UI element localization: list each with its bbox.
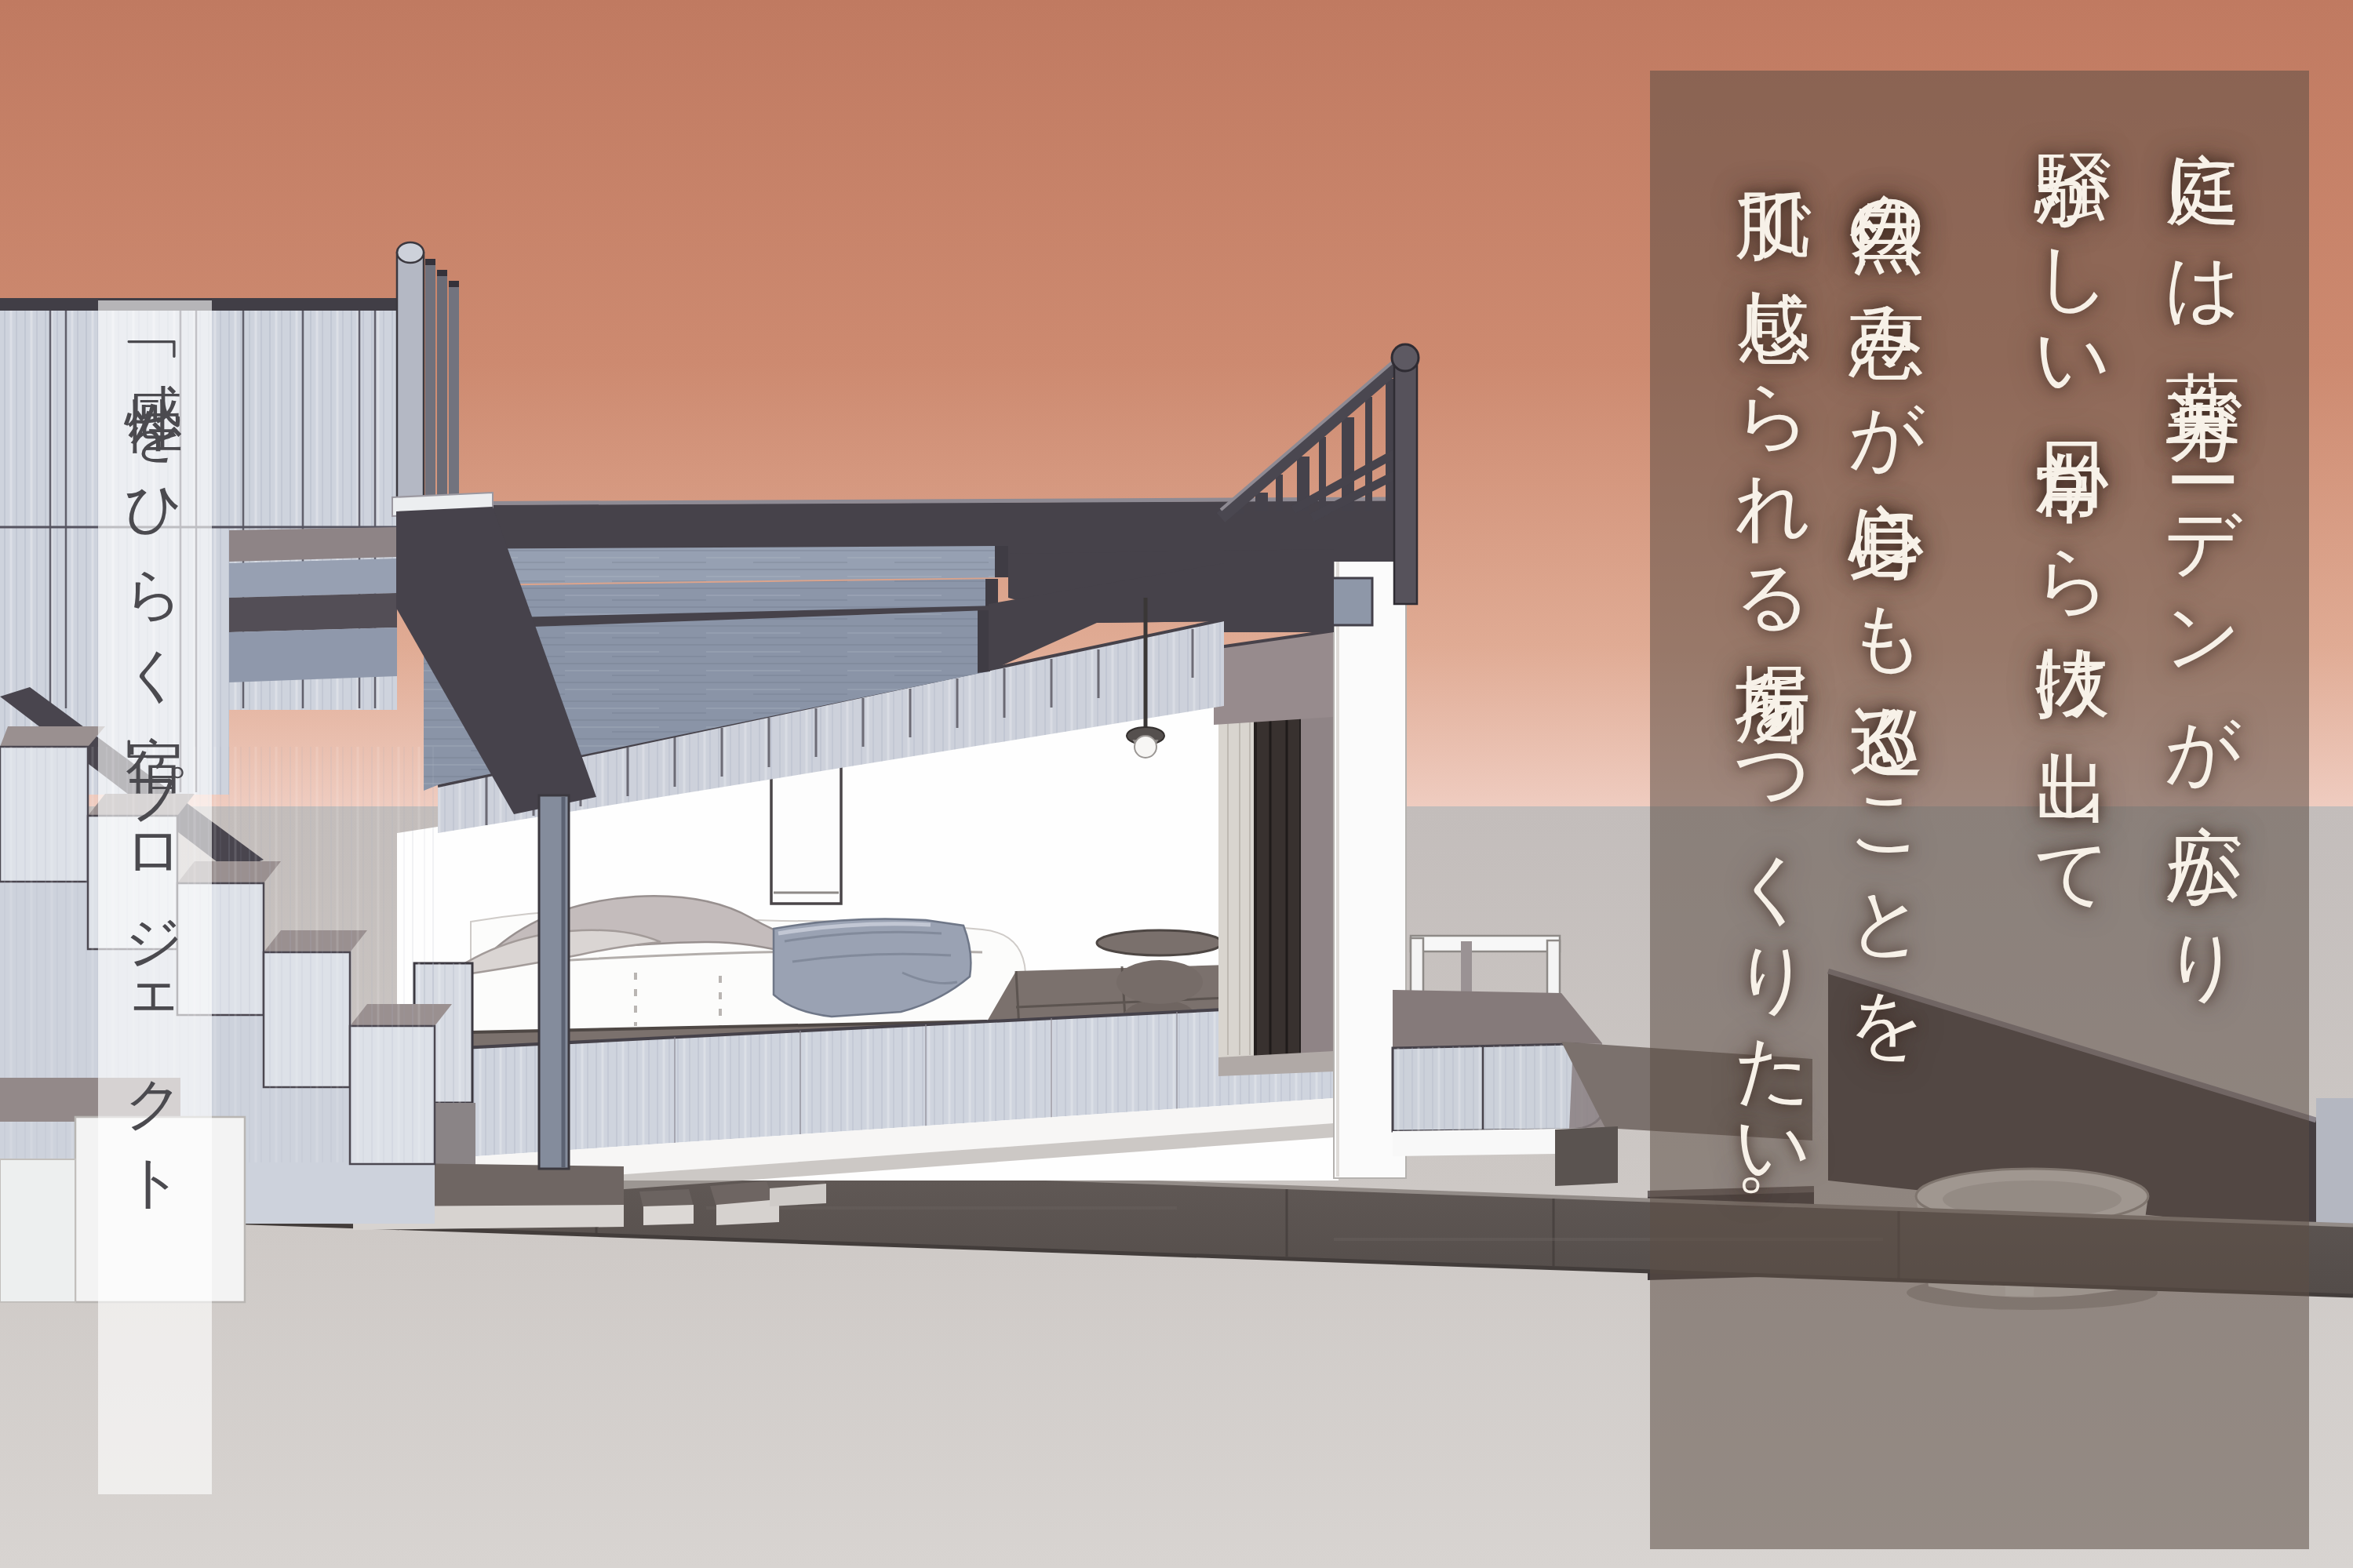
tagline-line-4: 肌で感じられる場所をつくりたい。 — [1701, 133, 1811, 1250]
poster: 「感性をひらく宿」プロジェクト 庭には薬草ガーデンが広がり 騒がしい日常から抜け… — [0, 0, 2353, 1568]
stepped-stairs — [0, 687, 452, 1302]
tagline-line-2: 騒がしい日常から抜け出して — [2001, 93, 2111, 888]
beam-end-block — [1331, 578, 1372, 625]
beam-ends-left — [229, 527, 397, 682]
railing-post-cap — [1392, 344, 1419, 371]
glass-door — [1214, 631, 1334, 1076]
tagline-line-3: 自然の恵みが心身にも巡ることを — [1815, 133, 1925, 1031]
project-title: 「感性をひらく宿」プロジェクト — [126, 323, 183, 1199]
stepped-planks — [425, 259, 459, 510]
railing-post — [1394, 358, 1417, 604]
support-post — [539, 795, 569, 1169]
tagline-line-1: 庭には薬草ガーデンが広がり — [2131, 90, 2241, 982]
round-cap-post — [397, 253, 424, 511]
